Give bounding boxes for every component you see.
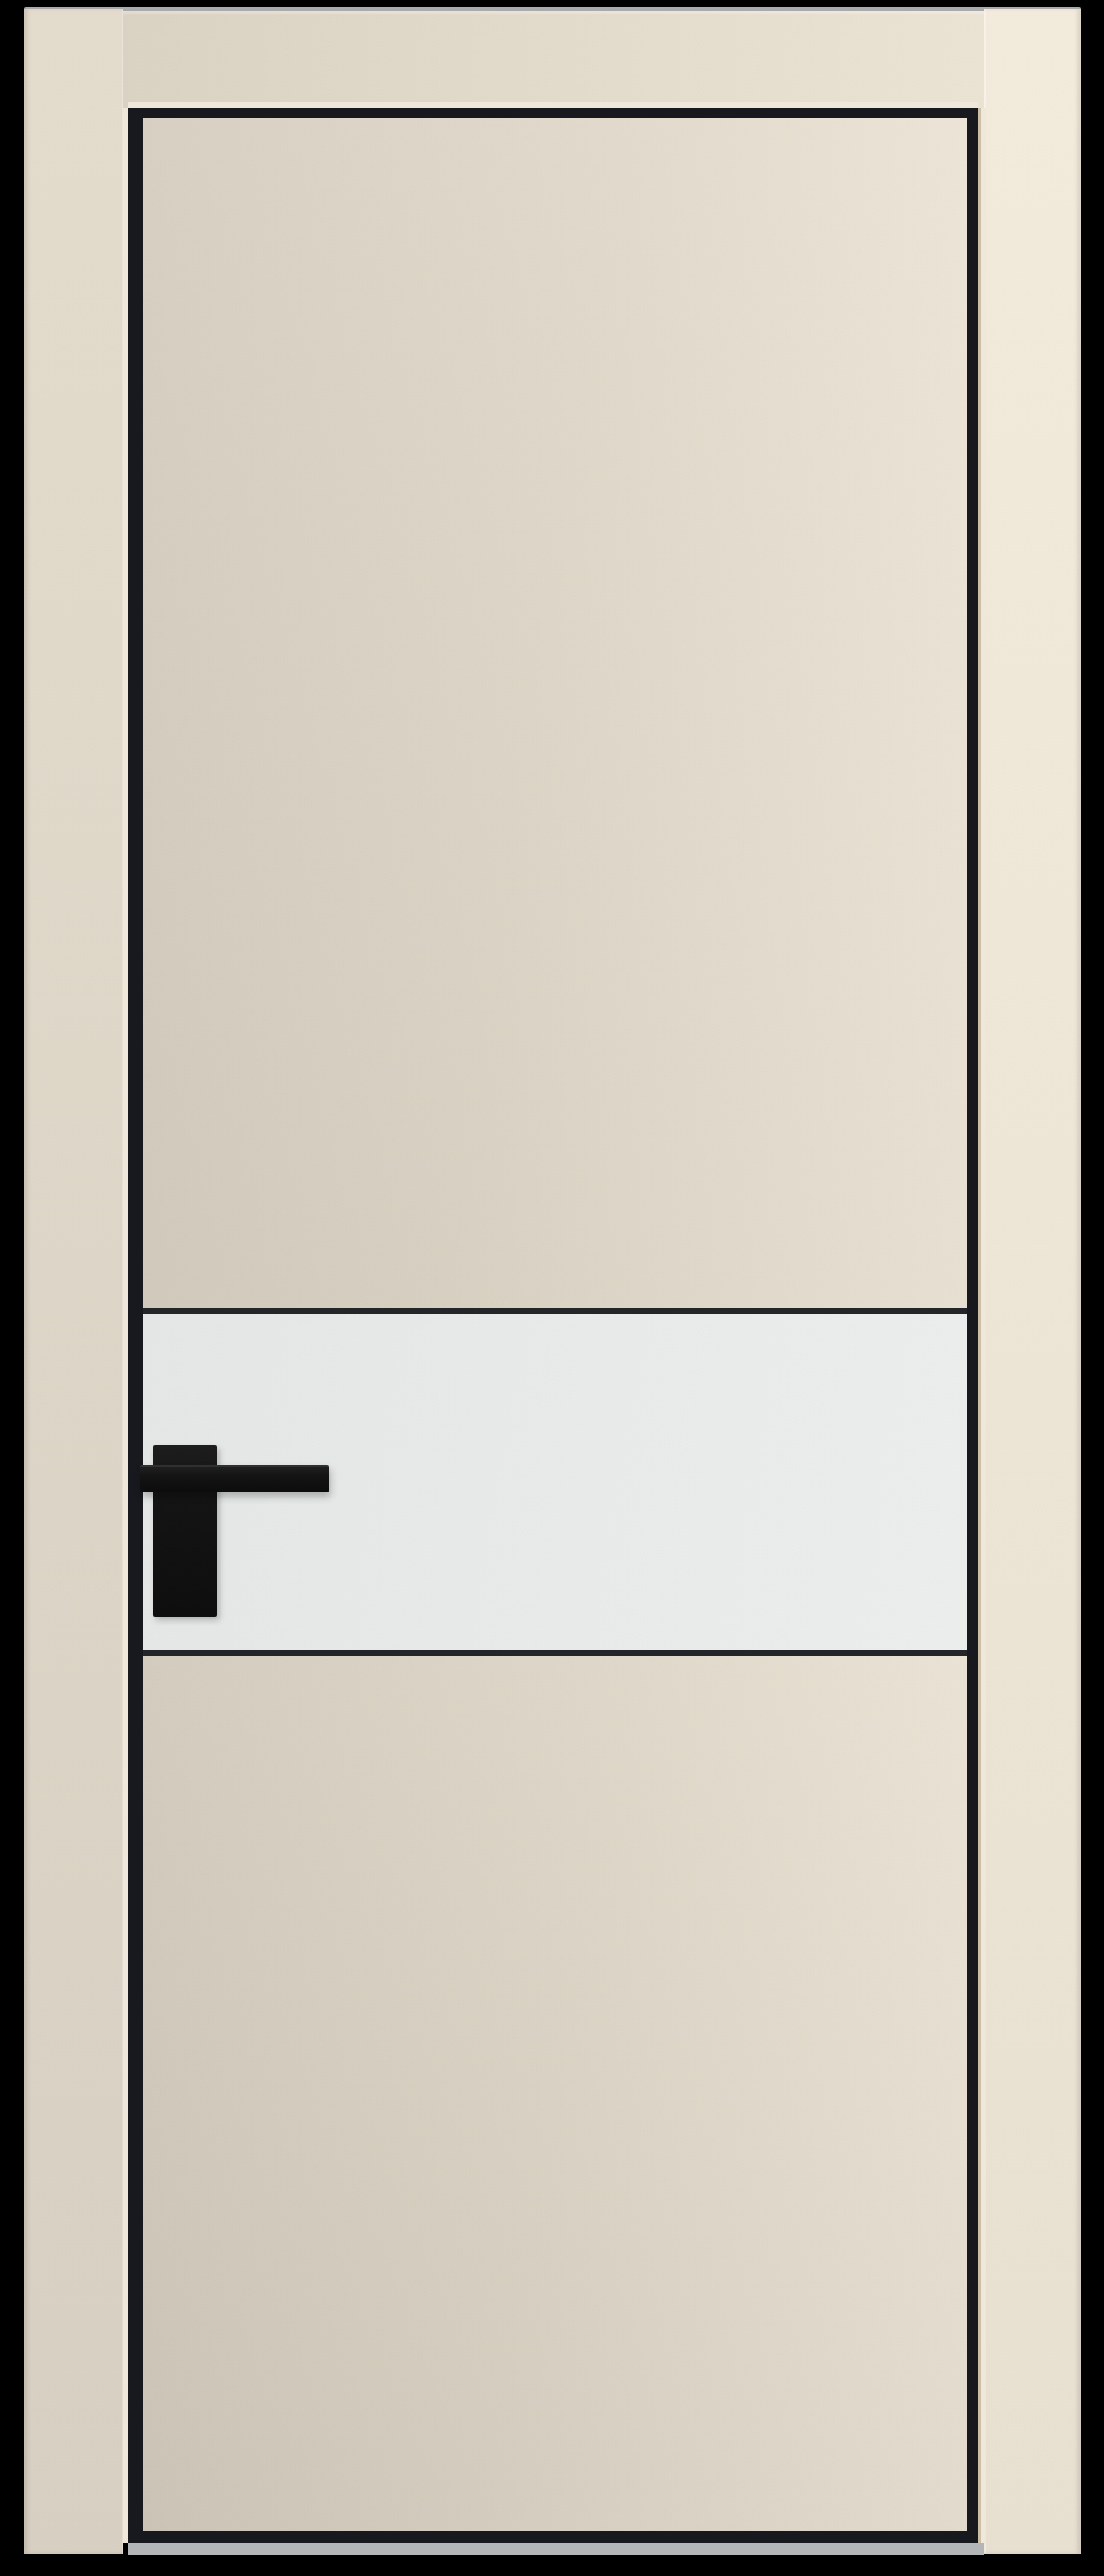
casing-edge-highlight-right [978,108,986,2543]
door-frame-header [94,11,987,108]
door-leaf-with-black-edge-trim [128,108,978,2543]
insert-top-trim-line [143,1308,967,1314]
casing-edge-highlight-top [128,102,978,108]
door-product-photo [0,0,1104,2576]
door-lower-cream-panel [143,1656,967,2531]
door-frame-right-jamb [984,9,1081,2554]
door-upper-cream-panel [143,118,967,1308]
floor-line [128,2543,984,2555]
door-handle-lever [140,1465,329,1492]
door-frame-left-jamb [24,9,123,2554]
